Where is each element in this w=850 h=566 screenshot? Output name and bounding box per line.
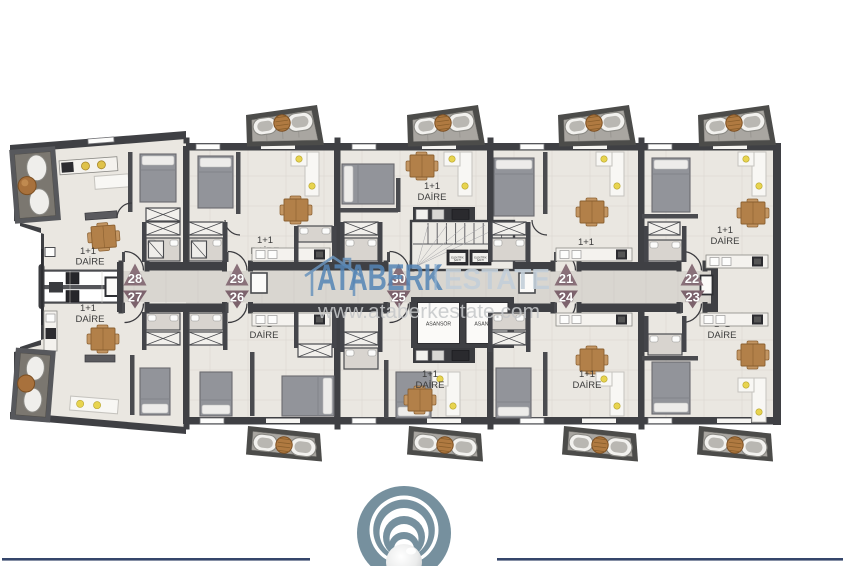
svg-text:21: 21: [559, 271, 573, 286]
svg-text:DAİRE: DAİRE: [249, 330, 278, 341]
svg-text:1+1: 1+1: [80, 246, 96, 257]
svg-text:ŞAFTI: ŞAFTI: [454, 258, 462, 262]
svg-text:1+1: 1+1: [717, 225, 733, 236]
svg-text:DAİRE: DAİRE: [710, 236, 739, 247]
svg-text:ŞAFTI: ŞAFTI: [477, 258, 485, 262]
svg-text:DAİRE: DAİRE: [707, 330, 736, 341]
svg-text:1+1: 1+1: [422, 369, 438, 380]
svg-text:DAİRE: DAİRE: [572, 380, 601, 391]
svg-text:29: 29: [230, 271, 244, 286]
svg-text:1+1: 1+1: [579, 369, 595, 380]
svg-text:1+1: 1+1: [80, 303, 96, 314]
svg-text:DAİRE: DAİRE: [75, 257, 104, 268]
svg-text:ATABERK: ATABERK: [317, 257, 443, 298]
svg-text:www.ataberkestate.com: www.ataberkestate.com: [317, 301, 540, 323]
svg-text:1+1: 1+1: [257, 235, 273, 246]
svg-text:26: 26: [230, 290, 244, 305]
svg-text:22: 22: [685, 271, 699, 286]
svg-text:24: 24: [559, 290, 574, 305]
svg-text:ESTATE: ESTATE: [444, 264, 550, 296]
svg-text:DAİRE: DAİRE: [417, 192, 446, 203]
svg-text:DAİRE: DAİRE: [415, 380, 444, 391]
svg-text:1+1: 1+1: [424, 181, 440, 192]
svg-text:1+1: 1+1: [578, 237, 594, 248]
svg-text:DAİRE: DAİRE: [75, 314, 104, 325]
svg-text:27: 27: [128, 290, 142, 305]
svg-text:28: 28: [128, 271, 142, 286]
svg-text:23: 23: [685, 290, 699, 305]
